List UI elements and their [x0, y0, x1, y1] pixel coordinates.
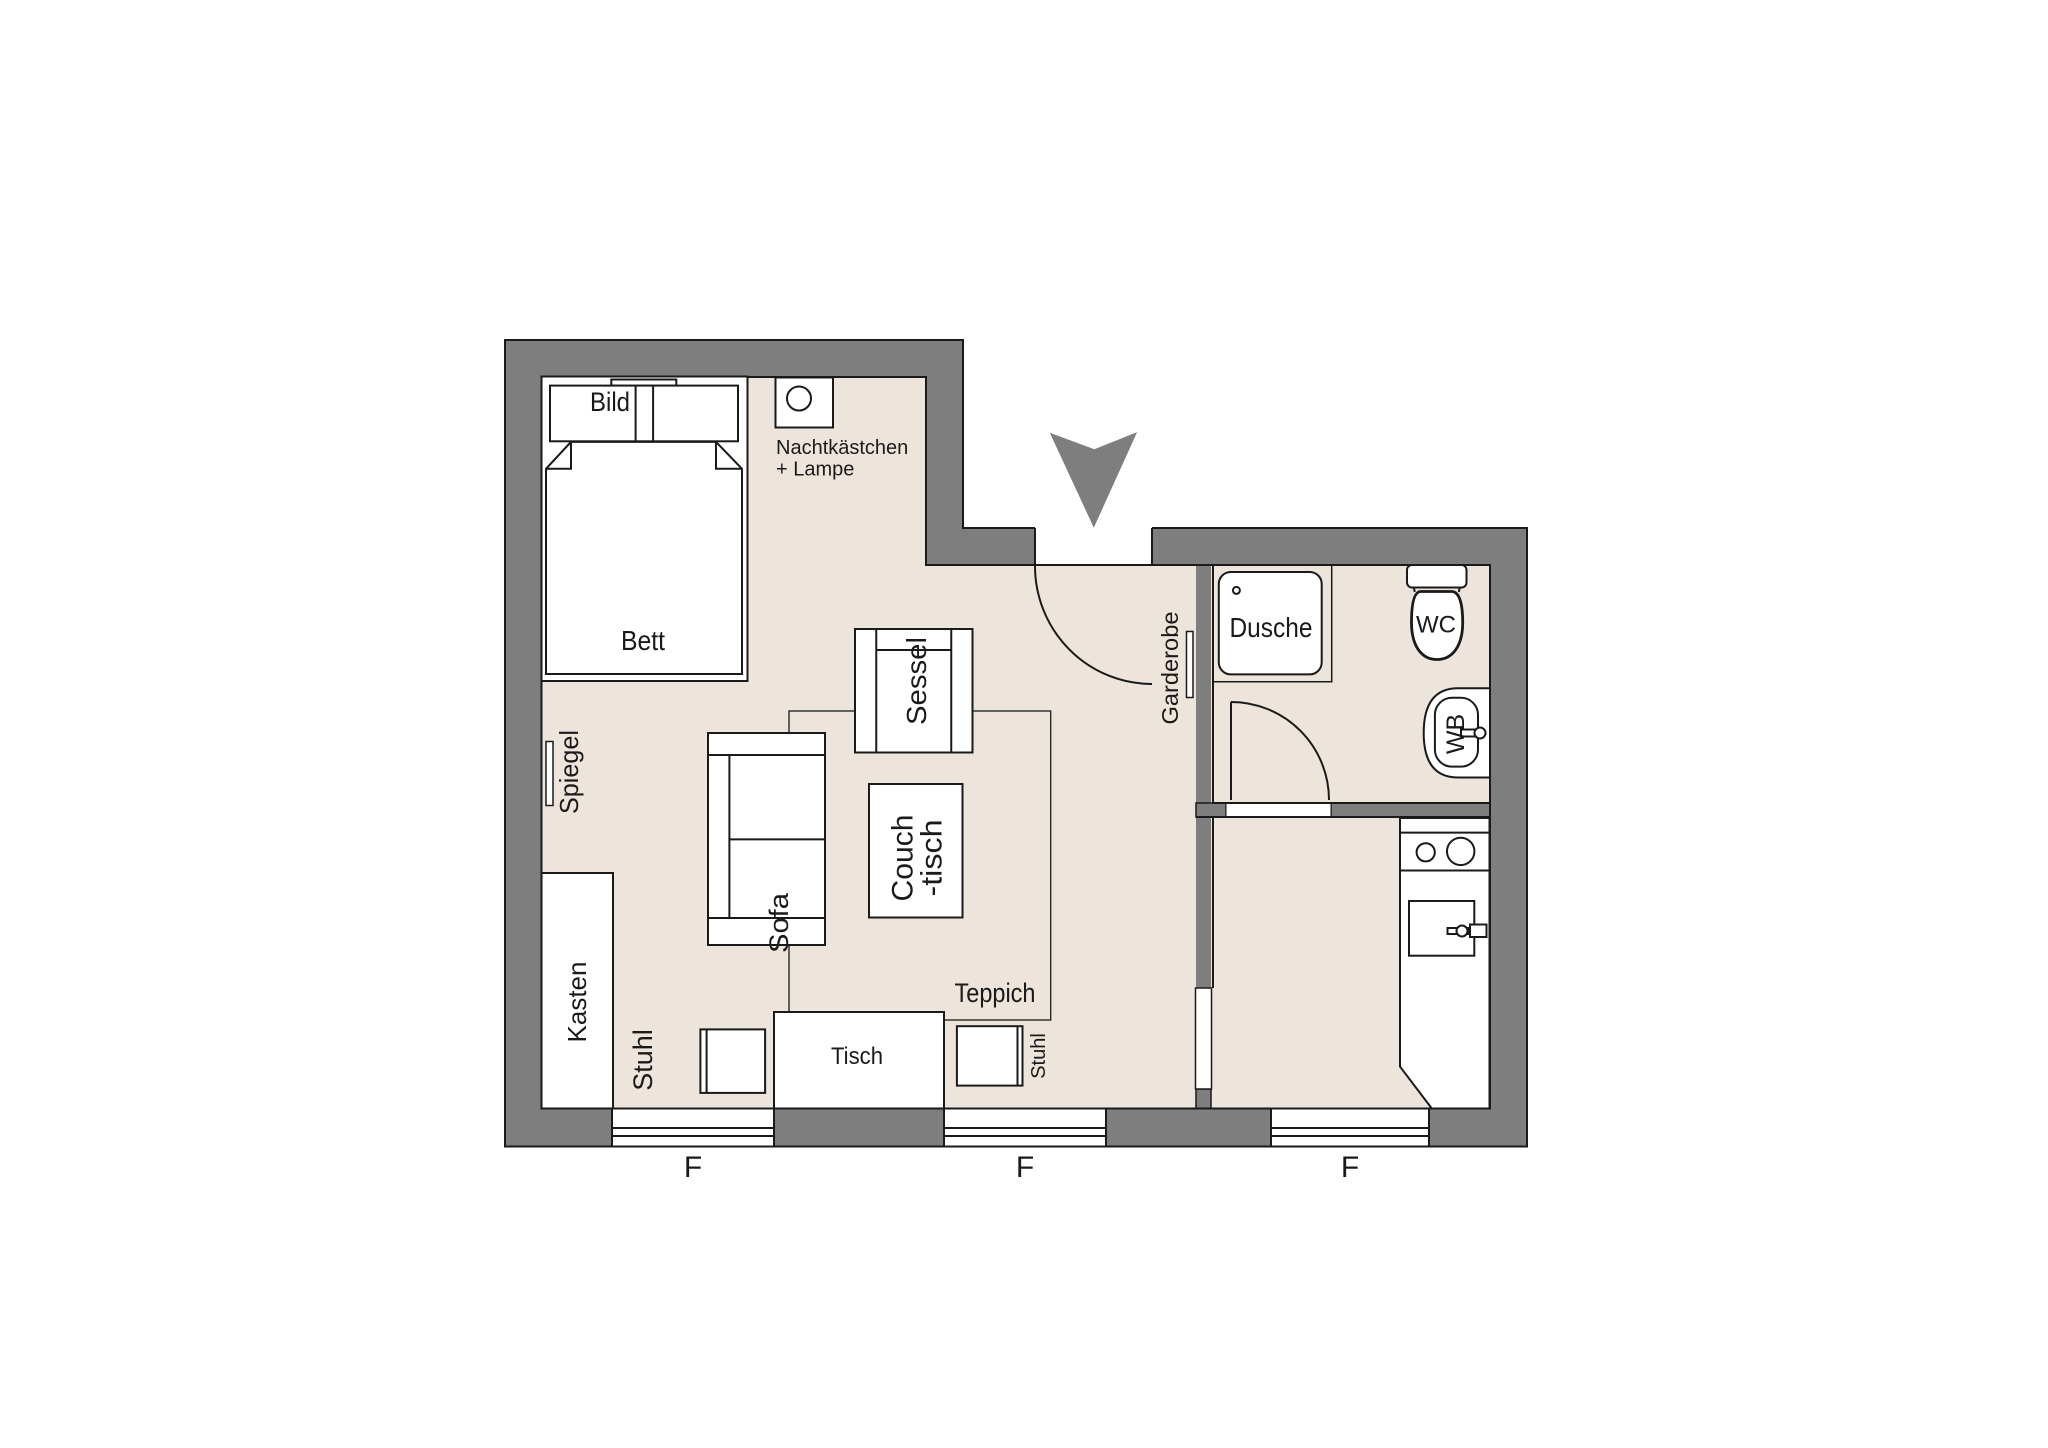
svg-text:Bild: Bild — [590, 387, 630, 417]
svg-text:Dusche: Dusche — [1230, 612, 1313, 643]
svg-text:Nachtkästchen: Nachtkästchen — [776, 437, 908, 459]
svg-text:Stuhl: Stuhl — [1028, 1033, 1050, 1079]
svg-text:+ Lampe: + Lampe — [776, 459, 854, 481]
svg-text:Sessel: Sessel — [901, 637, 932, 725]
svg-text:-tisch: -tisch — [916, 820, 949, 897]
svg-text:F: F — [1016, 1151, 1034, 1184]
svg-text:Garderobe: Garderobe — [1157, 612, 1183, 725]
svg-text:WB: WB — [1442, 714, 1470, 754]
svg-text:F: F — [684, 1151, 702, 1184]
svg-text:Spiegel: Spiegel — [554, 730, 584, 814]
svg-text:Tisch: Tisch — [831, 1043, 883, 1070]
svg-text:Kasten: Kasten — [562, 962, 592, 1043]
svg-text:Sofa: Sofa — [764, 892, 794, 953]
svg-text:F: F — [1341, 1151, 1359, 1184]
svg-text:WC: WC — [1416, 612, 1456, 639]
svg-text:Bett: Bett — [621, 625, 665, 656]
svg-text:Teppich: Teppich — [955, 978, 1036, 1008]
svg-text:Stuhl: Stuhl — [628, 1029, 658, 1091]
